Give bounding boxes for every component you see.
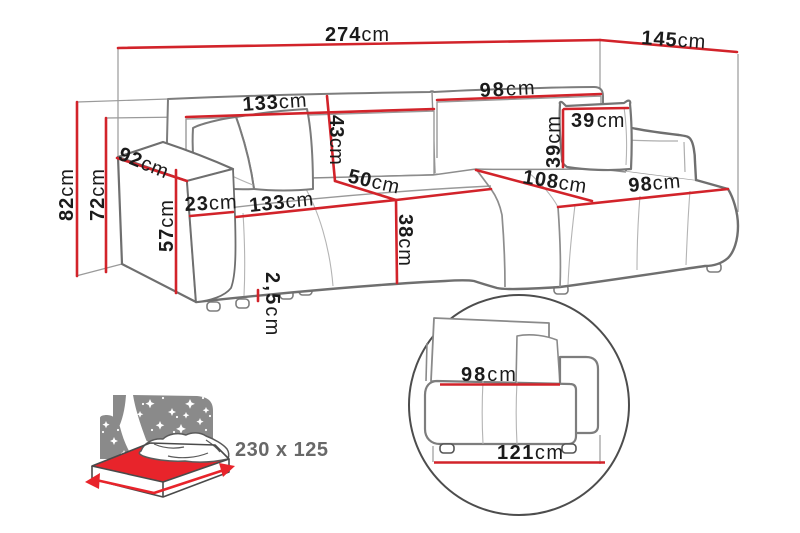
svg-text:98cm: 98cm [461,364,518,386]
svg-text:145cm: 145cm [641,27,707,53]
svg-text:43cm: 43cm [325,115,347,165]
svg-text:23cm: 23cm [184,191,238,216]
svg-text:230 x 125: 230 x 125 [235,439,328,461]
svg-text:2,5cm: 2,5cm [261,272,283,337]
svg-text:98cm: 98cm [628,170,683,197]
svg-text:72cm: 72cm [87,168,109,221]
svg-text:274cm: 274cm [325,24,390,46]
svg-text:39cm: 39cm [571,110,625,132]
svg-text:82cm: 82cm [56,168,78,221]
svg-text:133cm: 133cm [242,90,308,116]
svg-text:121cm: 121cm [497,442,565,464]
svg-text:98cm: 98cm [479,77,537,102]
svg-text:57cm: 57cm [156,199,178,252]
svg-text:38cm: 38cm [394,214,416,267]
svg-text:39cm: 39cm [543,115,565,168]
